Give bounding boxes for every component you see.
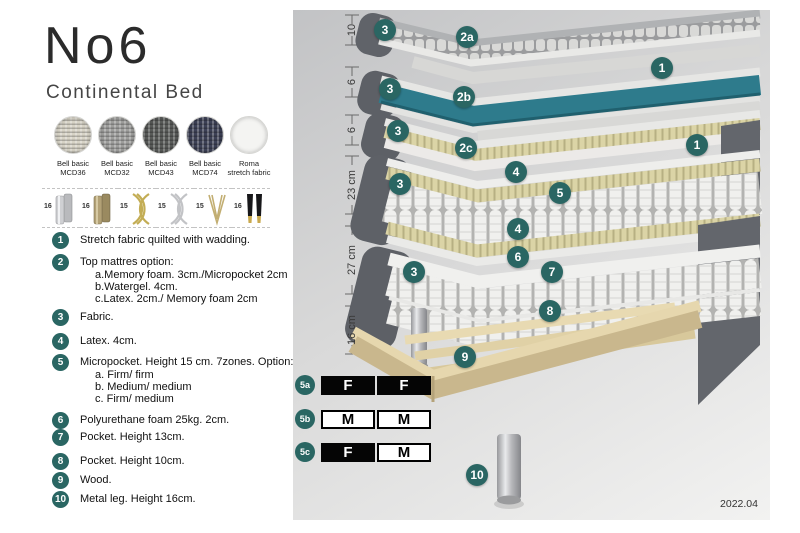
- fabric-option: Roma stretch fabric: [227, 116, 271, 177]
- legend-text: Pocket. Height 10cm.: [80, 455, 185, 468]
- legend-number-badge: 2: [52, 254, 69, 271]
- diagram-badge-5: 5: [549, 182, 571, 204]
- fabric-code: MCD74: [189, 168, 221, 177]
- leg-cylinder-brass-icon: [91, 192, 115, 226]
- firmness-cell: F: [321, 376, 375, 395]
- firmness-cells: M M: [321, 410, 431, 429]
- diagram-badge-4: 4: [507, 218, 529, 240]
- legend-subtext: b. Medium/ medium: [95, 381, 293, 393]
- legend-number-badge: 7: [52, 429, 69, 446]
- leg-options-row: 16 16 15 15 15 16: [42, 188, 270, 228]
- diagram-badge-6: 6: [507, 246, 529, 268]
- diagram-badge-7: 7: [541, 261, 563, 283]
- firmness-row-5c: 5c F M: [295, 442, 431, 462]
- dimension-label-6a: 6: [346, 79, 358, 85]
- metal-leg-front: [494, 434, 524, 509]
- diagram-badge-3: 3: [379, 78, 401, 100]
- diagram-badge-2c: 2c: [455, 137, 477, 159]
- firmness-row-5b: 5b M M: [295, 409, 431, 429]
- version-label: 2022.04: [720, 498, 758, 510]
- product-title: No6: [44, 16, 151, 76]
- fabric-label: Roma stretch fabric: [228, 159, 271, 177]
- fabric-name: Bell basic: [57, 159, 89, 168]
- diagram-badge-3: 3: [387, 120, 409, 142]
- diagram-badge-3: 3: [374, 19, 396, 41]
- product-subtitle: Continental Bed: [46, 82, 204, 104]
- legend-item-7: 7 Pocket. Height 13cm.: [52, 429, 185, 446]
- legend-text: Pocket. Height 13cm.: [80, 431, 185, 444]
- fabric-option: Bell basic MCD74: [183, 116, 227, 177]
- diagram-badge-1: 1: [651, 57, 673, 79]
- fabric-code: MCD43: [145, 168, 177, 177]
- dimension-label-16cm: 16 cm: [346, 315, 358, 345]
- legend-item-8: 8 Pocket. Height 10cm.: [52, 453, 185, 470]
- legend-subtext: a.Memory foam. 3cm./Micropocket 2cm: [95, 269, 288, 281]
- legend-item-1: 1 Stretch fabric quilted with wadding.: [52, 232, 250, 249]
- leg-option-cross-gold: 15: [118, 188, 156, 228]
- leg-option-cylinder-silver: 16: [42, 188, 80, 228]
- diagram-badge-4: 4: [505, 161, 527, 183]
- legend-item-2: 2 Top mattres option: a.Memory foam. 3cm…: [52, 254, 288, 305]
- fabric-name: Bell basic: [189, 159, 221, 168]
- diagram-badge-3: 3: [403, 261, 425, 283]
- legend-text: Top mattres option:: [80, 256, 288, 269]
- leg-cross-gold-icon: [129, 192, 153, 226]
- firmness-badge-5b: 5b: [295, 409, 315, 429]
- firmness-cell: F: [377, 376, 431, 395]
- diagram-badge-2a: 2a: [456, 26, 478, 48]
- diagram-badge-10: 10: [466, 464, 488, 486]
- firmness-cell: F: [321, 443, 375, 462]
- firmness-cells: F M: [321, 443, 431, 462]
- legend-subtext: a. Firm/ firm: [95, 369, 293, 381]
- fabric-name: Bell basic: [101, 159, 133, 168]
- leg-height-label: 16: [82, 203, 90, 210]
- leg-height-label: 16: [234, 203, 242, 210]
- firmness-cell: M: [377, 410, 431, 429]
- legend-item-3: 3 Fabric.: [52, 309, 114, 326]
- leg-option-taper-black-gold: 16: [232, 188, 270, 228]
- fabric-label: Bell basic MCD36: [57, 159, 89, 177]
- fabric-option: Bell basic MCD36: [51, 116, 95, 177]
- legend-text: Wood.: [80, 474, 112, 487]
- legend-number-badge: 4: [52, 333, 69, 350]
- legend-number-badge: 8: [52, 453, 69, 470]
- legend-number-badge: 3: [52, 309, 69, 326]
- fabric-swatch-icon: [98, 116, 136, 154]
- leg-height-label: 15: [158, 203, 166, 210]
- fabric-code: stretch fabric: [228, 168, 271, 177]
- diagram-badge-3: 3: [389, 173, 411, 195]
- firmness-cell: M: [321, 410, 375, 429]
- fabric-swatch-row: Bell basic MCD36 Bell basic MCD32 Bell b…: [51, 116, 271, 177]
- leg-cross-silver-icon: [167, 192, 191, 226]
- leg-height-label: 15: [196, 203, 204, 210]
- leg-height-label: 16: [44, 203, 52, 210]
- leg-option-cylinder-brass: 16: [80, 188, 118, 228]
- legend-number-badge: 6: [52, 412, 69, 429]
- leg-taper-black-gold-icon: [243, 192, 267, 226]
- fabric-swatch-icon: [54, 116, 92, 154]
- fabric-swatch-icon: [186, 116, 224, 154]
- legend-text: Micropocket. Height 15 cm. 7zones. Optio…: [80, 356, 293, 369]
- legend-number-badge: 9: [52, 472, 69, 489]
- legend-number-badge: 1: [52, 232, 69, 249]
- dimension-label-6b: 6: [346, 127, 358, 133]
- fabric-name: Bell basic: [145, 159, 177, 168]
- fabric-swatch-icon: [142, 116, 180, 154]
- fabric-code: MCD32: [101, 168, 133, 177]
- exploded-bed-diagram-panel: 10 6 6 23 cm 27 cm 16 cm 3 2a 1 3 2b 3 2…: [293, 10, 770, 520]
- dimension-label-23cm: 23 cm: [346, 170, 358, 200]
- dimension-label-10: 10: [346, 24, 358, 36]
- firmness-cells: F F: [321, 376, 431, 395]
- firmness-badge-5c: 5c: [295, 442, 315, 462]
- firmness-badge-5a: 5a: [295, 375, 315, 395]
- legend-number-badge: 5: [52, 354, 69, 371]
- fabric-code: MCD36: [57, 168, 89, 177]
- legend-subtext: b.Watergel. 4cm.: [95, 281, 288, 293]
- legend-item-5: 5 Micropocket. Height 15 cm. 7zones. Opt…: [52, 354, 293, 405]
- fabric-name: Roma: [228, 159, 271, 168]
- legend-item-10: 10 Metal leg. Height 16cm.: [52, 491, 196, 508]
- fabric-swatch-icon: [230, 116, 268, 154]
- fabric-label: Bell basic MCD74: [189, 159, 221, 177]
- legend-text: Polyurethane foam 25kg. 2cm.: [80, 414, 229, 427]
- legend-item-4: 4 Latex. 4cm.: [52, 333, 137, 350]
- legend-item-9: 9 Wood.: [52, 472, 112, 489]
- firmness-cell: M: [377, 443, 431, 462]
- leg-height-label: 15: [120, 203, 128, 210]
- fabric-option: Bell basic MCD32: [95, 116, 139, 177]
- leg-hairpin-icon: [205, 192, 229, 226]
- legend-number-badge: 10: [52, 491, 69, 508]
- diagram-badge-8: 8: [539, 300, 561, 322]
- firmness-row-5a: 5a F F: [295, 375, 431, 395]
- legend-text: Fabric.: [80, 311, 114, 324]
- legend-text: Metal leg. Height 16cm.: [80, 493, 196, 506]
- legend-text: Latex. 4cm.: [80, 335, 137, 348]
- leg-cylinder-silver-icon: [53, 192, 77, 226]
- legend-subtext: c. Firm/ medium: [95, 393, 293, 405]
- leg-option-cross-silver: 15: [156, 188, 194, 228]
- fabric-option: Bell basic MCD43: [139, 116, 183, 177]
- legend-subtext: c.Latex. 2cm./ Memory foam 2cm: [95, 293, 288, 305]
- leg-option-hairpin-gold: 15: [194, 188, 232, 228]
- diagram-badge-9: 9: [454, 346, 476, 368]
- fabric-label: Bell basic MCD43: [145, 159, 177, 177]
- dimension-label-27cm: 27 cm: [346, 245, 358, 275]
- diagram-badge-2b: 2b: [453, 86, 475, 108]
- diagram-badge-1: 1: [686, 134, 708, 156]
- fabric-label: Bell basic MCD32: [101, 159, 133, 177]
- legend-text: Stretch fabric quilted with wadding.: [80, 234, 250, 247]
- legend-item-6: 6 Polyurethane foam 25kg. 2cm.: [52, 412, 229, 429]
